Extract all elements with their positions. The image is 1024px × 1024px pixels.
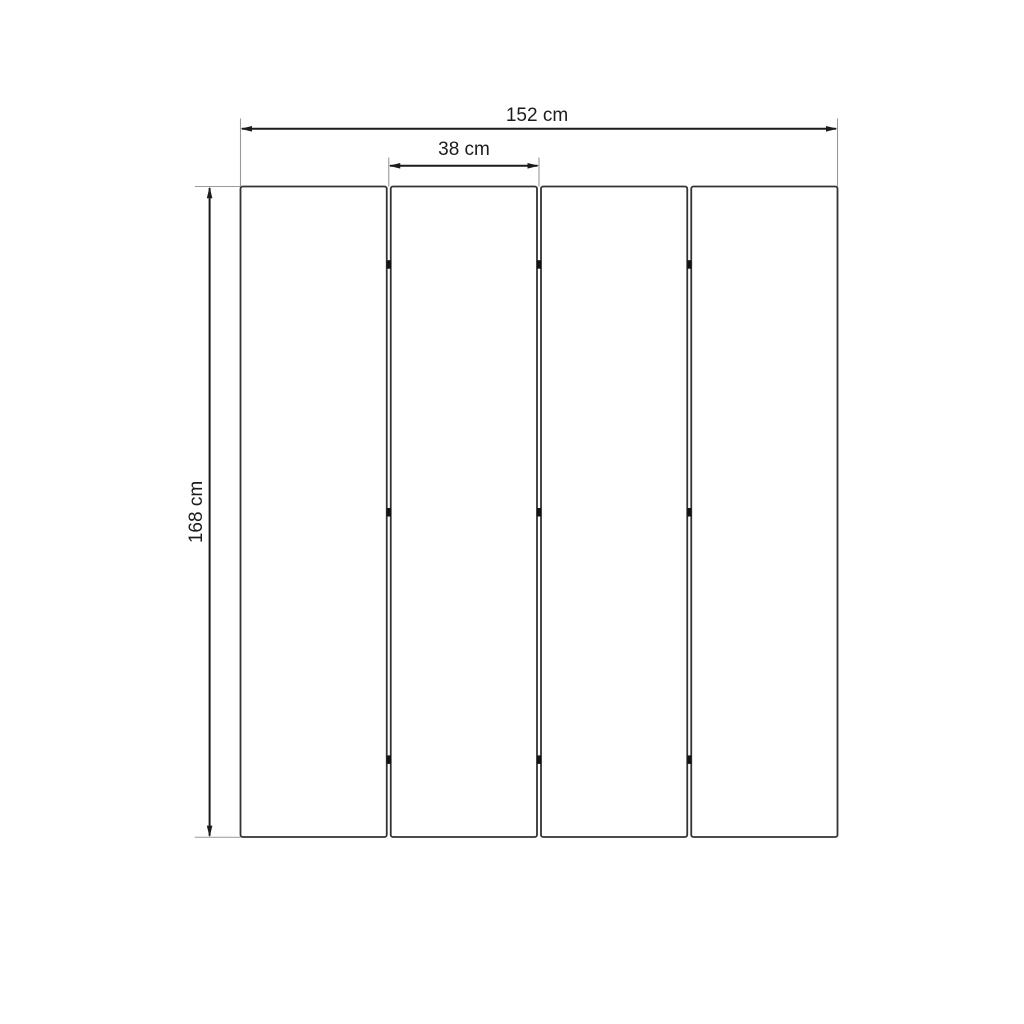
svg-text:152 cm: 152 cm xyxy=(506,105,568,126)
svg-text:168 cm: 168 cm xyxy=(186,481,207,543)
svg-text:38 cm: 38 cm xyxy=(438,139,490,160)
